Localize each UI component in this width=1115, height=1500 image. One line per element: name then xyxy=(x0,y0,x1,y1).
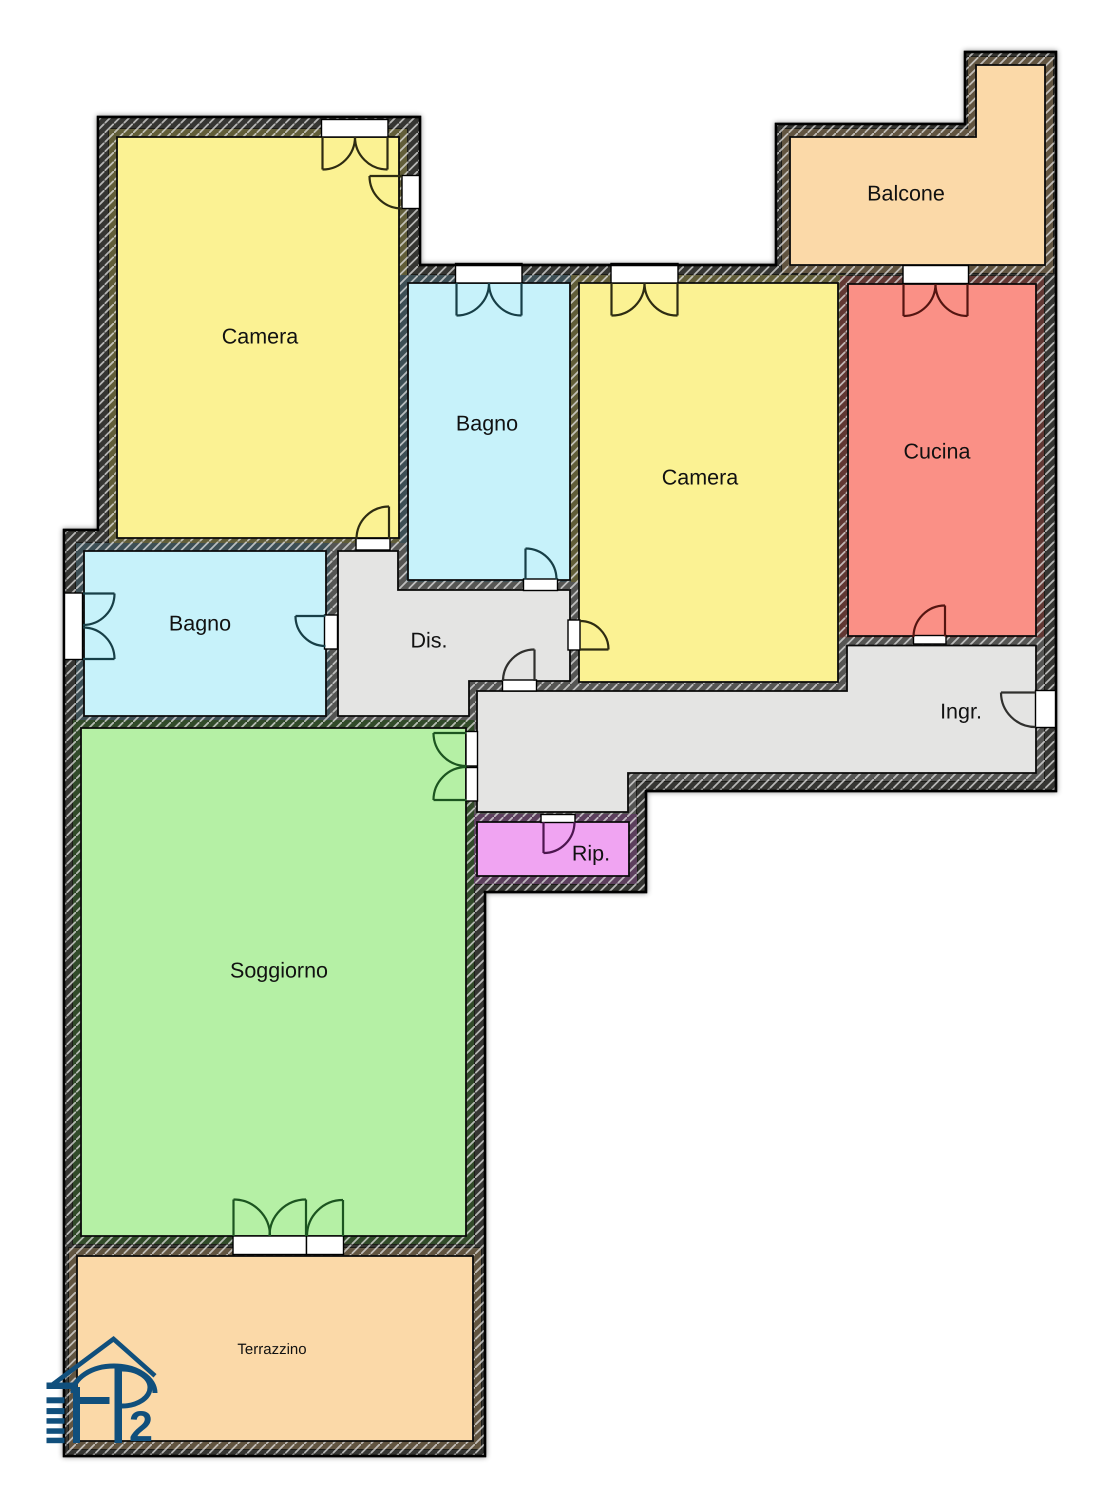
svg-text:Balcone: Balcone xyxy=(867,182,945,206)
svg-text:2: 2 xyxy=(129,1403,153,1451)
svg-text:Camera: Camera xyxy=(222,325,299,349)
svg-text:Cucina: Cucina xyxy=(904,440,971,464)
svg-text:Dis.: Dis. xyxy=(410,629,447,653)
svg-text:Rip.: Rip. xyxy=(572,842,610,866)
svg-text:Soggiorno: Soggiorno xyxy=(230,959,328,983)
svg-text:Ingr.: Ingr. xyxy=(940,700,982,724)
svg-text:Terrazzino: Terrazzino xyxy=(237,1341,306,1358)
svg-text:Camera: Camera xyxy=(662,466,739,490)
svg-text:Bagno: Bagno xyxy=(169,612,231,636)
svg-text:Bagno: Bagno xyxy=(456,412,518,436)
